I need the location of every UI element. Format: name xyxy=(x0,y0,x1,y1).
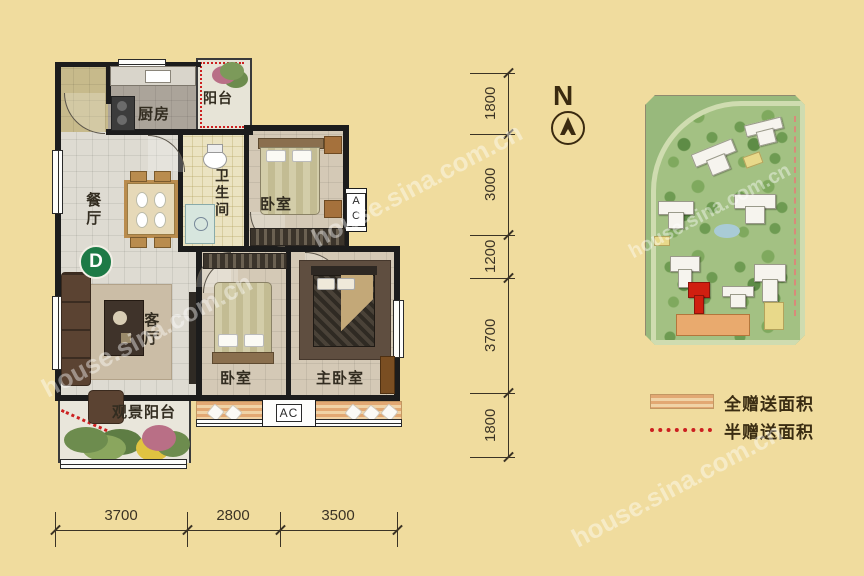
dim-right-3: 1200 xyxy=(482,226,499,286)
window xyxy=(52,150,63,214)
room-label-balcony-top: 阳台 xyxy=(203,90,233,106)
legend-row-half-gift: 半赠送面积 xyxy=(648,418,828,440)
full-gift-swatch-icon xyxy=(650,394,714,409)
sofa xyxy=(61,272,91,386)
toilet-tank xyxy=(207,144,223,153)
room-label-bedroom-middle: 卧室 xyxy=(220,370,252,387)
dining-chair xyxy=(130,171,147,182)
dimension-line xyxy=(55,530,398,531)
nightstand xyxy=(324,136,342,154)
site-path-dotted xyxy=(794,116,796,316)
north-arrow-icon xyxy=(551,111,585,145)
site-plan-map xyxy=(645,95,807,347)
wardrobe-strip xyxy=(250,228,345,246)
dresser xyxy=(380,356,395,394)
kitchen-sink xyxy=(145,70,171,83)
dim-right-4: 3700 xyxy=(482,305,499,365)
dim-bottom-2: 2800 xyxy=(203,507,263,524)
tv-console xyxy=(189,292,196,384)
site-building-small xyxy=(654,236,670,246)
unit-badge: D xyxy=(79,245,113,279)
legend-label-full-gift: 全赠送面积 xyxy=(724,390,814,415)
dim-bottom-3: 3500 xyxy=(308,507,368,524)
room-label-kitchen: 厨房 xyxy=(138,106,170,123)
room-label-view-balcony: 观景阳台 xyxy=(112,404,176,421)
dim-right-2: 3000 xyxy=(482,154,499,214)
room-label-bathroom: 卫生间 xyxy=(214,168,230,219)
dining-chair xyxy=(154,171,171,182)
dining-chair xyxy=(154,237,171,248)
room-label-master-bedroom: 主卧室 xyxy=(316,370,364,387)
ac-label: AC xyxy=(276,404,303,422)
room-label-living: 客厅 xyxy=(142,312,159,348)
bed-middle xyxy=(212,282,274,370)
site-building-small xyxy=(764,302,784,330)
wall xyxy=(244,125,249,252)
plant xyxy=(220,62,244,80)
north-label: N xyxy=(553,80,573,112)
wall xyxy=(343,246,400,252)
dining-chair xyxy=(130,237,147,248)
kitchen-stove xyxy=(111,96,135,131)
wall xyxy=(248,125,349,131)
bed-master xyxy=(311,266,377,350)
dim-right-1: 1800 xyxy=(482,73,499,133)
dim-right-5: 1800 xyxy=(482,395,499,455)
dining-table xyxy=(127,183,175,235)
ac-box-bottom: AC xyxy=(262,399,316,427)
site-building xyxy=(734,194,774,222)
dim-bottom-1: 3700 xyxy=(91,507,151,524)
site-building xyxy=(658,201,692,227)
plant xyxy=(64,427,108,453)
site-pond xyxy=(714,224,740,238)
room-label-dining: 餐厅 xyxy=(84,192,101,228)
site-building xyxy=(754,264,784,300)
half-gift-dotted-icon xyxy=(650,428,712,432)
wall xyxy=(178,246,348,252)
ac-box-top: AC xyxy=(345,188,367,232)
kitchen-counter xyxy=(110,66,196,86)
wall xyxy=(286,252,291,401)
window xyxy=(60,459,187,469)
unit-badge-letter: D xyxy=(89,251,103,273)
legend-label-half-gift: 半赠送面积 xyxy=(724,418,814,443)
nightstand xyxy=(324,200,342,218)
room-label-bedroom-top: 卧室 xyxy=(260,196,292,213)
window xyxy=(393,300,404,358)
shower xyxy=(185,204,215,244)
plant xyxy=(142,425,176,451)
site-building-highlighted xyxy=(688,282,708,312)
legend-row-full-gift: 全赠送面积 xyxy=(648,390,828,412)
coffee-table xyxy=(104,300,144,356)
site-building-commercial xyxy=(676,314,750,336)
floor-plan-page: AC AC 阳台 厨房 卫生间 卧室 餐厅 客厅 卧室 主卧室 观景阳台 D 3… xyxy=(0,0,864,576)
ac-label: AC xyxy=(346,193,366,227)
wardrobe-strip xyxy=(203,253,287,269)
site-building xyxy=(722,286,752,306)
